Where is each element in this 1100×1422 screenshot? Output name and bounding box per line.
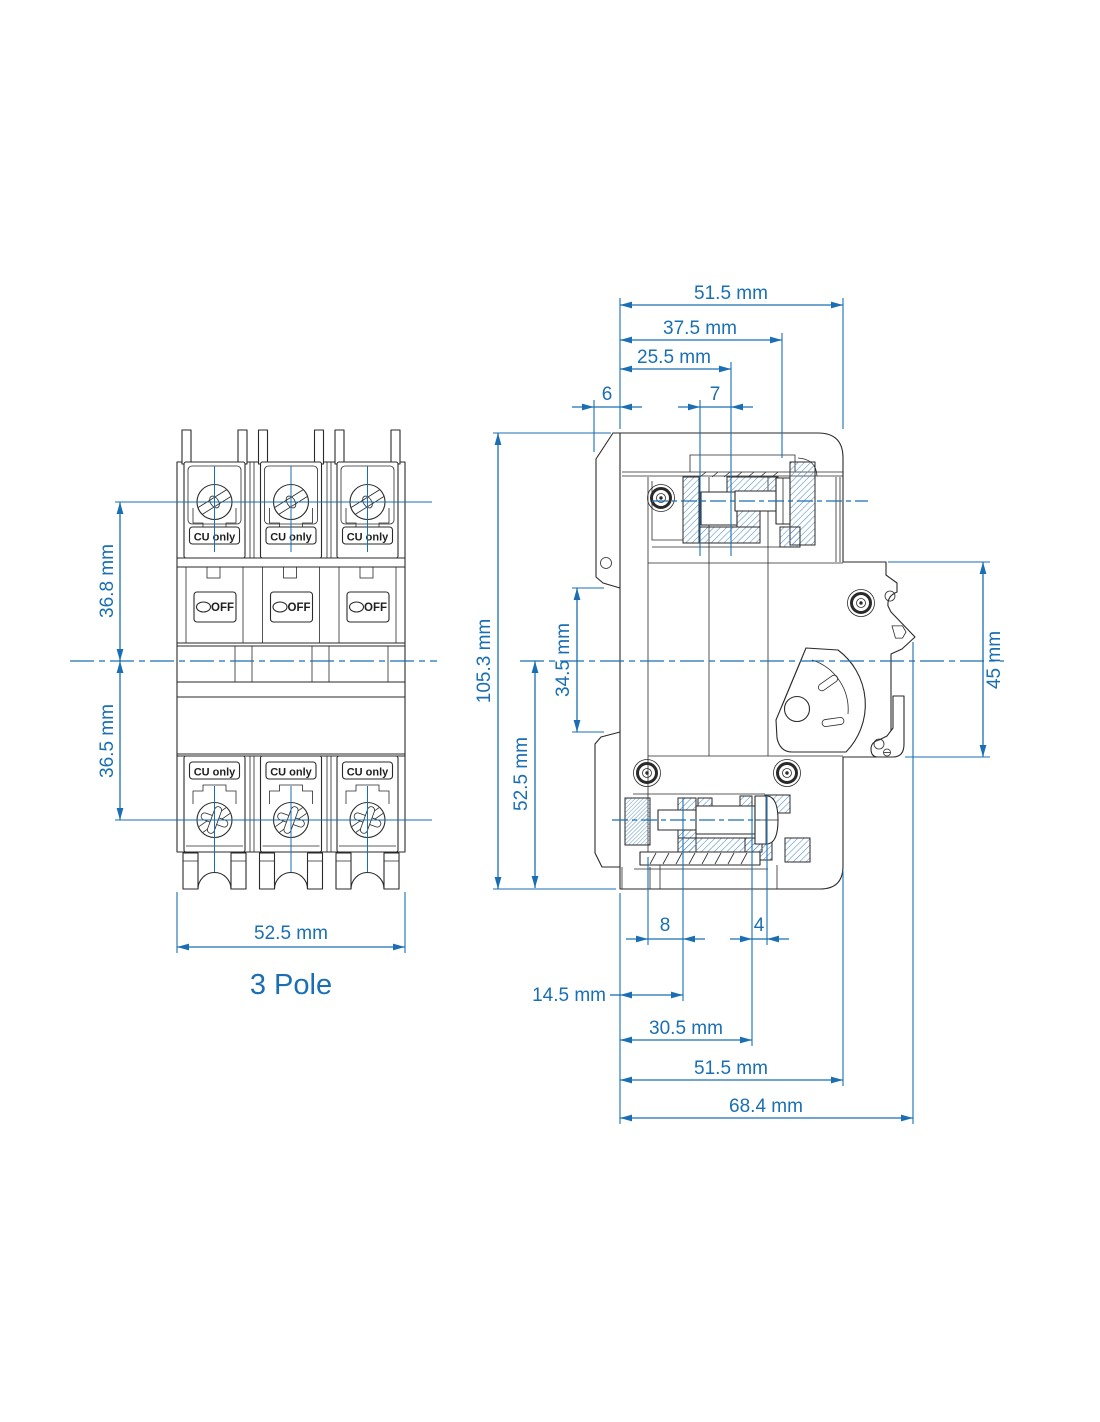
flange-hole: [601, 558, 612, 569]
cam-hole: [785, 697, 810, 722]
dim-depth-mid: 37.5 mm: [663, 318, 737, 339]
technical-drawing: CU only OFF CU only: [0, 0, 1100, 1422]
dim-bottom-overall: 68.4 mm: [729, 1096, 803, 1117]
dim-bottom-1: 14.5 mm: [532, 985, 606, 1006]
dim-bottom-3: 51.5 mm: [694, 1058, 768, 1079]
side-view: 51.5 mm 37.5 mm 25.5 mm 6 7 105.3 mm 34.…: [474, 283, 1005, 1124]
dim-front-upper: 36.8 mm: [97, 544, 118, 618]
front-view-caption: 3 Pole: [250, 969, 332, 1001]
dim-din-section: 45 mm: [984, 631, 1005, 689]
dim-flange: 6: [602, 384, 613, 405]
dim-bottom-small-left: 8: [660, 915, 671, 936]
dim-terminal-opening: 7: [710, 384, 721, 405]
panel-flange-bottom: [595, 732, 620, 867]
dim-depth-overall-top: 51.5 mm: [694, 283, 768, 304]
panel-flange-top: [596, 433, 620, 588]
dim-rail-notch: 34.5 mm: [553, 623, 574, 697]
dim-height-overall: 105.3 mm: [474, 619, 495, 703]
dim-lower-half: 52.5 mm: [511, 737, 532, 811]
drawing-page: CU only OFF CU only: [0, 0, 1100, 1422]
dim-bottom-small-right: 4: [754, 915, 765, 936]
threaded-block: [625, 798, 650, 845]
dim-front-width: 52.5 mm: [254, 923, 328, 944]
front-view: 36.8 mm 36.5 mm 52.5 mm 3 Pole: [70, 430, 437, 1001]
dim-depth-front: 25.5 mm: [637, 347, 711, 368]
dim-front-lower: 36.5 mm: [97, 704, 118, 778]
dim-bottom-2: 30.5 mm: [649, 1018, 723, 1039]
